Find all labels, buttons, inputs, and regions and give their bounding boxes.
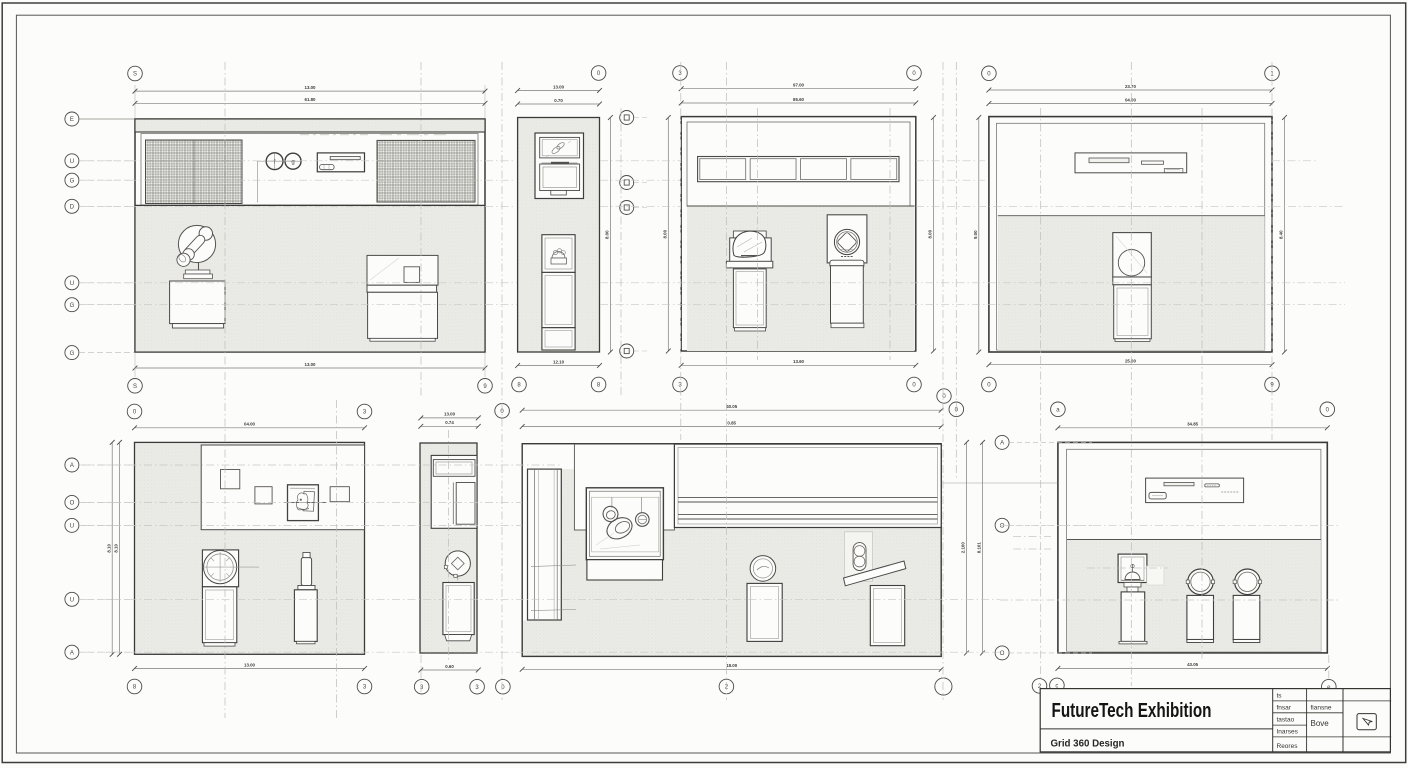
svg-text:8.10: 8.10 bbox=[106, 544, 111, 553]
svg-text:fnsar: fnsar bbox=[1277, 705, 1292, 712]
svg-text:D: D bbox=[70, 204, 75, 210]
svg-text:U: U bbox=[70, 159, 74, 165]
svg-text:8.40: 8.40 bbox=[1279, 230, 1284, 239]
svg-text:43.05: 43.05 bbox=[1187, 662, 1199, 667]
svg-text:O: O bbox=[1000, 523, 1005, 529]
svg-text:97.00: 97.00 bbox=[793, 83, 805, 88]
svg-text:13.00: 13.00 bbox=[305, 85, 317, 90]
svg-text:34.85: 34.85 bbox=[1187, 422, 1199, 427]
svg-text:S: S bbox=[133, 72, 137, 78]
svg-text:04.00: 04.00 bbox=[1125, 97, 1137, 102]
svg-text:40.05: 40.05 bbox=[726, 404, 738, 409]
svg-text:A: A bbox=[70, 650, 74, 656]
svg-text:0.74: 0.74 bbox=[445, 420, 454, 425]
svg-text:A: A bbox=[70, 463, 74, 469]
svg-text:FutureTech Exhibition: FutureTech Exhibition bbox=[1052, 699, 1212, 722]
svg-text:9.00: 9.00 bbox=[973, 230, 978, 239]
svg-text:8.00: 8.00 bbox=[663, 229, 668, 238]
svg-text:04.00: 04.00 bbox=[244, 422, 256, 427]
svg-text:Inarses: Inarses bbox=[1277, 729, 1299, 736]
svg-text:O: O bbox=[1000, 651, 1005, 657]
svg-text:8.00: 8.00 bbox=[605, 230, 610, 239]
svg-text:ts: ts bbox=[1277, 693, 1283, 700]
svg-text:13.00: 13.00 bbox=[244, 662, 256, 667]
svg-text:2.100: 2.100 bbox=[961, 542, 966, 554]
svg-text:85.60: 85.60 bbox=[793, 97, 805, 102]
svg-text:8.10: 8.10 bbox=[114, 544, 119, 553]
svg-text:12.10: 12.10 bbox=[553, 359, 565, 364]
svg-text:G: G bbox=[70, 303, 75, 309]
svg-text:U: U bbox=[70, 524, 74, 530]
svg-text:Reores: Reores bbox=[1277, 743, 1299, 750]
svg-text:Bove: Bove bbox=[1311, 719, 1330, 728]
svg-text:0.85: 0.85 bbox=[727, 420, 736, 425]
svg-text:U: U bbox=[70, 281, 74, 287]
svg-text:fiansne: fiansne bbox=[1311, 705, 1332, 712]
svg-text:U: U bbox=[70, 597, 74, 603]
svg-text:Grid 360 Design: Grid 360 Design bbox=[1051, 739, 1125, 750]
svg-text:A: A bbox=[1000, 441, 1004, 447]
svg-text:23.70: 23.70 bbox=[1125, 84, 1137, 89]
svg-text:E: E bbox=[70, 117, 74, 123]
svg-text:0.60: 0.60 bbox=[445, 664, 454, 669]
svg-text:13.60: 13.60 bbox=[793, 359, 805, 364]
svg-text:13.00: 13.00 bbox=[444, 412, 456, 417]
svg-text:18.00: 18.00 bbox=[726, 663, 738, 668]
svg-text:8.101: 8.101 bbox=[977, 542, 982, 554]
svg-text:G: G bbox=[70, 178, 75, 184]
svg-text:61.80: 61.80 bbox=[305, 97, 317, 102]
svg-text:8.00: 8.00 bbox=[928, 229, 933, 238]
svg-text:0.70: 0.70 bbox=[554, 98, 563, 103]
svg-text:g: g bbox=[291, 160, 294, 166]
svg-text:tastao: tastao bbox=[1277, 717, 1295, 724]
svg-text:G: G bbox=[70, 351, 75, 357]
svg-text:O: O bbox=[70, 501, 75, 507]
svg-text:S: S bbox=[133, 384, 137, 390]
svg-text:13.00: 13.00 bbox=[553, 84, 565, 89]
svg-text:13.00: 13.00 bbox=[305, 362, 317, 367]
svg-text:25.00: 25.00 bbox=[1125, 359, 1137, 364]
